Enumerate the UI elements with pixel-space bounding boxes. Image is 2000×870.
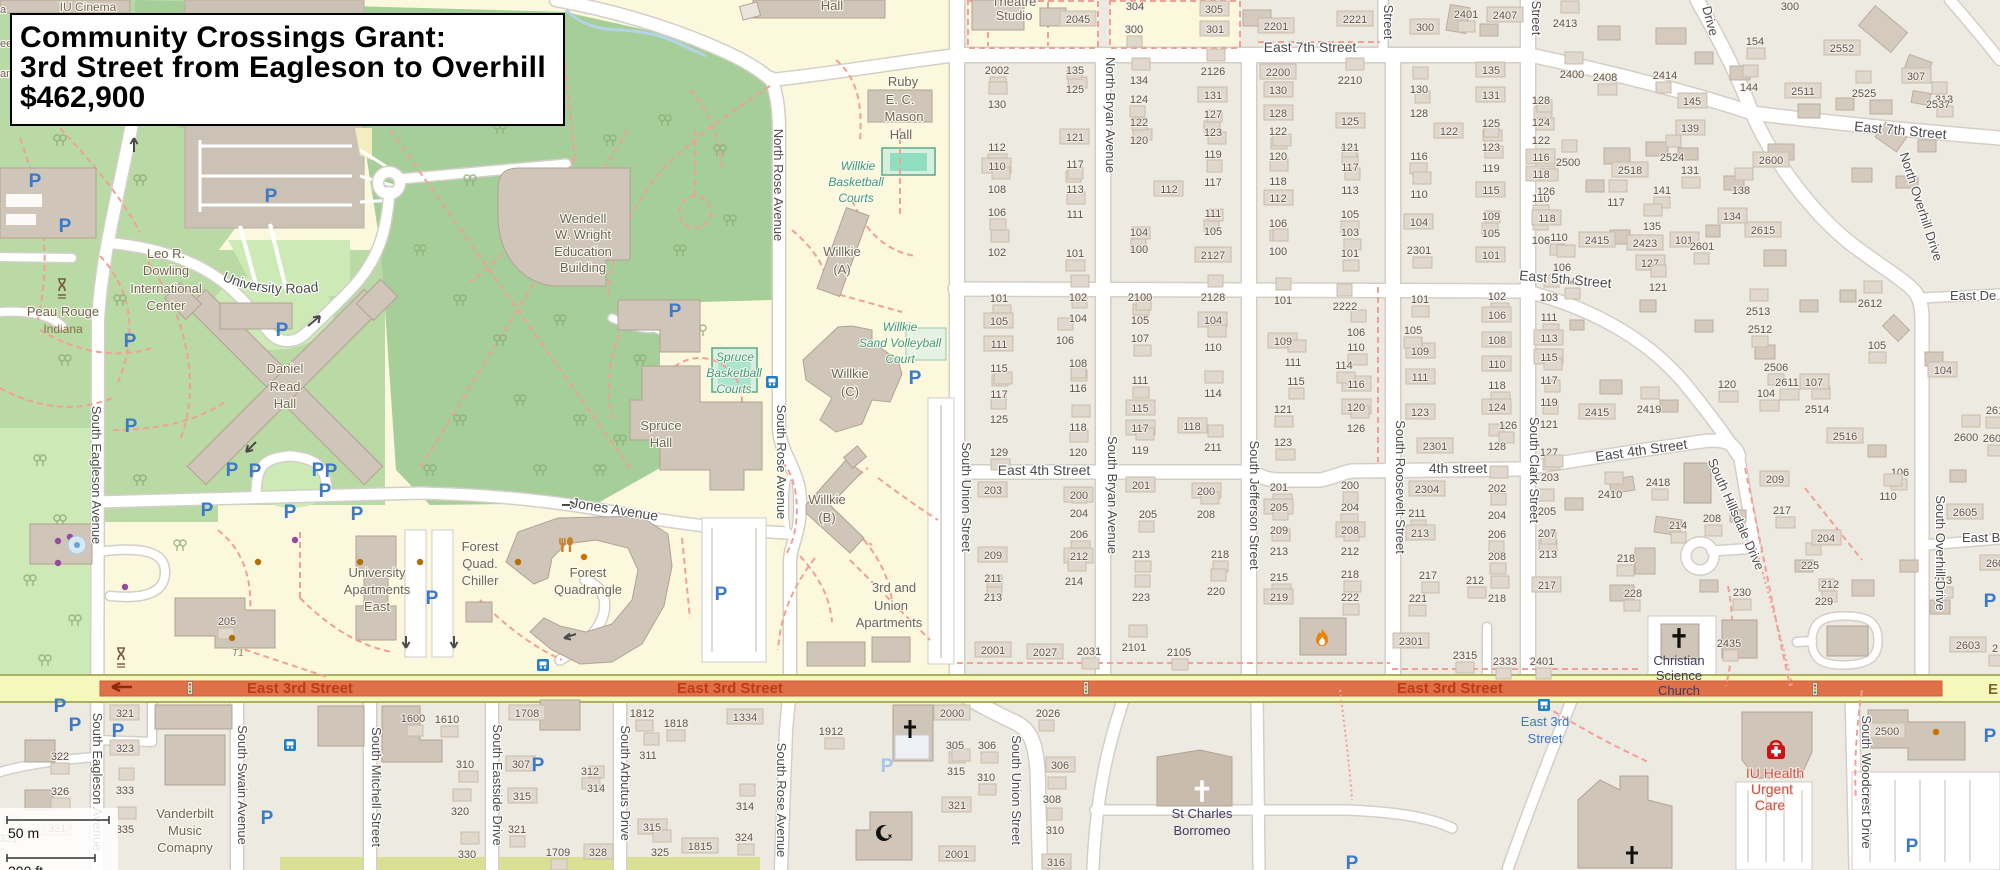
svg-text:105: 105 [1204, 226, 1222, 238]
svg-text:306: 306 [978, 740, 996, 752]
svg-text:321: 321 [116, 708, 134, 720]
svg-text:P: P [201, 500, 214, 521]
svg-text:2045: 2045 [1066, 14, 1090, 26]
svg-text:118: 118 [1269, 176, 1287, 188]
svg-text:125: 125 [1482, 118, 1500, 130]
svg-text:W. Wright: W. Wright [555, 227, 611, 242]
svg-text:Hall: Hall [650, 435, 673, 450]
svg-text:50 m: 50 m [8, 825, 39, 841]
svg-text:111: 111 [1285, 357, 1302, 369]
svg-text:130: 130 [1410, 84, 1428, 96]
svg-text:110: 110 [1488, 359, 1506, 371]
svg-text:2415: 2415 [1585, 235, 1609, 247]
svg-text:117: 117 [1066, 159, 1084, 171]
svg-text:111: 111 [1132, 375, 1149, 387]
svg-text:102: 102 [1488, 291, 1506, 303]
svg-text:2201: 2201 [1264, 21, 1288, 33]
svg-text:322: 322 [51, 751, 69, 763]
svg-text:126: 126 [1347, 423, 1365, 435]
svg-text:P: P [29, 171, 42, 192]
svg-text:Forest: Forest [570, 565, 607, 580]
svg-text:105: 105 [1131, 315, 1149, 327]
svg-text:213: 213 [1539, 549, 1557, 561]
svg-text:134: 134 [1130, 75, 1148, 87]
svg-text:Borromeo: Borromeo [1173, 823, 1230, 838]
svg-text:200: 200 [1070, 490, 1088, 502]
svg-text:Spruce: Spruce [640, 418, 681, 433]
svg-text:120: 120 [1130, 135, 1148, 147]
svg-text:217: 217 [1419, 570, 1437, 582]
svg-text:South Overhill Drive: South Overhill Drive [1933, 495, 1948, 611]
svg-text:2506: 2506 [1764, 362, 1788, 374]
svg-text:South Union Street: South Union Street [959, 442, 974, 552]
svg-text:101: 101 [1274, 295, 1292, 307]
svg-text:201: 201 [1132, 480, 1150, 492]
svg-text:2127: 2127 [1201, 250, 1225, 262]
svg-text:Willkie: Willkie [883, 320, 918, 334]
svg-text:201: 201 [1270, 482, 1288, 494]
svg-text:203: 203 [984, 485, 1002, 497]
svg-text:135: 135 [1482, 65, 1500, 77]
svg-text:South Bryan Avenue: South Bryan Avenue [1105, 436, 1120, 554]
svg-text:116: 116 [1069, 383, 1087, 395]
svg-text:P: P [1906, 836, 1919, 857]
svg-text:P: P [112, 721, 125, 742]
svg-text:204: 204 [1488, 510, 1506, 522]
svg-text:218: 218 [1488, 593, 1506, 605]
svg-text:220: 220 [1207, 586, 1225, 598]
svg-text:2513: 2513 [1746, 306, 1770, 318]
svg-text:East 3rd Street: East 3rd Street [677, 680, 783, 697]
svg-text:106: 106 [1532, 235, 1550, 247]
svg-text:2615: 2615 [1751, 225, 1775, 237]
svg-text:2100: 2100 [1128, 292, 1152, 304]
svg-text:2514: 2514 [1805, 404, 1829, 416]
svg-text:Chiller: Chiller [462, 573, 500, 588]
svg-text:2601: 2601 [1690, 241, 1714, 253]
svg-text:Mason: Mason [884, 109, 923, 124]
svg-text:IU Cinema: IU Cinema [60, 0, 117, 14]
svg-text:208: 208 [1703, 513, 1721, 525]
svg-text:301: 301 [1206, 24, 1224, 36]
svg-text:324: 324 [735, 832, 753, 844]
svg-text:121: 121 [1274, 404, 1292, 416]
svg-text:P: P [715, 584, 728, 605]
svg-text:South Woodcrest Drive: South Woodcrest Drive [1859, 715, 1874, 848]
svg-text:Sand Volleyball: Sand Volleyball [859, 336, 942, 350]
svg-text:2401: 2401 [1454, 9, 1478, 21]
svg-text:102: 102 [988, 247, 1006, 259]
svg-text:North Rose Avenue: North Rose Avenue [771, 129, 786, 242]
svg-text:2126: 2126 [1201, 66, 1225, 78]
svg-text:2101: 2101 [1122, 642, 1146, 654]
svg-text:121: 121 [1649, 282, 1667, 294]
svg-text:122: 122 [1130, 117, 1148, 129]
svg-text:204: 204 [1341, 502, 1359, 514]
svg-text:330: 330 [458, 849, 476, 861]
svg-text:P: P [261, 808, 274, 829]
svg-text:212: 212 [1821, 579, 1839, 591]
svg-text:2512: 2512 [1748, 324, 1772, 336]
svg-text:209: 209 [1766, 474, 1784, 486]
svg-text:115: 115 [1131, 403, 1149, 415]
svg-text:2605: 2605 [1953, 507, 1977, 519]
svg-text:3rd Street from Eagleson to Ov: 3rd Street from Eagleson to Overhill [20, 51, 546, 84]
svg-text:2419: 2419 [1637, 404, 1661, 416]
svg-text:118: 118 [1183, 421, 1201, 433]
svg-text:100: 100 [1269, 246, 1287, 258]
svg-text:2400: 2400 [1560, 69, 1584, 81]
svg-text:213: 213 [1270, 546, 1288, 558]
svg-text:115: 115 [1540, 352, 1558, 364]
svg-text:P: P [881, 756, 894, 777]
svg-text:P: P [532, 755, 545, 776]
svg-text:335: 335 [116, 824, 134, 836]
svg-text:107: 107 [1131, 333, 1149, 345]
svg-text:Street: Street [1529, 1, 1544, 36]
svg-text:119: 119 [1204, 149, 1222, 161]
svg-text:105: 105 [990, 316, 1008, 328]
svg-text:111: 111 [1205, 208, 1222, 220]
svg-text:2027: 2027 [1033, 647, 1057, 659]
svg-text:East 3rd Street: East 3rd Street [1397, 680, 1503, 697]
svg-text:104: 104 [1757, 388, 1775, 400]
svg-text:P: P [312, 460, 325, 481]
svg-text:T1: T1 [232, 648, 244, 659]
svg-text:P: P [351, 504, 364, 525]
svg-text:135: 135 [1066, 65, 1084, 77]
svg-text:North Bryan Avenue: North Bryan Avenue [1103, 57, 1118, 173]
svg-text:122: 122 [1440, 126, 1458, 138]
svg-text:2518: 2518 [1618, 165, 1642, 177]
svg-text:2408: 2408 [1593, 72, 1617, 84]
svg-text:Street: Street [1528, 731, 1563, 746]
svg-text:114: 114 [1335, 360, 1353, 372]
svg-text:120: 120 [1718, 379, 1736, 391]
svg-text:South Rose Avenue: South Rose Avenue [774, 743, 789, 858]
svg-text:300: 300 [1781, 1, 1799, 13]
svg-text:100: 100 [1130, 244, 1148, 256]
svg-text:East 4th Street: East 4th Street [998, 462, 1091, 478]
svg-text:2: 2 [1992, 643, 1998, 655]
svg-text:1610: 1610 [435, 714, 459, 726]
svg-text:Indiana: Indiana [43, 322, 83, 336]
svg-text:110: 110 [1550, 232, 1568, 244]
svg-text:117: 117 [1204, 177, 1222, 189]
svg-text:2407: 2407 [1493, 10, 1517, 22]
svg-text:205: 205 [1270, 502, 1288, 514]
svg-text:a: a [0, 4, 7, 16]
svg-text:222: 222 [1341, 592, 1359, 604]
svg-text:122: 122 [1269, 126, 1287, 138]
svg-text:Church: Church [1658, 683, 1700, 698]
svg-text:154: 154 [1746, 36, 1764, 48]
svg-text:2552: 2552 [1830, 43, 1854, 55]
svg-text:126: 126 [1499, 420, 1517, 432]
svg-text:2001: 2001 [981, 645, 1005, 657]
svg-text:109: 109 [1411, 346, 1429, 358]
svg-text:125: 125 [990, 414, 1008, 426]
svg-text:South Eagleson Avenue: South Eagleson Avenue [89, 406, 104, 545]
svg-text:214: 214 [1065, 576, 1083, 588]
svg-text:P: P [276, 320, 289, 341]
svg-text:2026: 2026 [1036, 708, 1060, 720]
svg-text:131: 131 [1204, 90, 1222, 102]
svg-text:2210: 2210 [1338, 75, 1362, 87]
svg-text:261: 261 [1986, 405, 2000, 417]
svg-text:131: 131 [1681, 165, 1699, 177]
svg-text:P: P [284, 502, 297, 523]
svg-text:2000: 2000 [940, 708, 964, 720]
svg-text:P: P [426, 588, 439, 609]
svg-text:111: 111 [1412, 372, 1429, 384]
svg-text:South Clark Street: South Clark Street [1527, 417, 1542, 524]
svg-text:South Swain Avenue: South Swain Avenue [235, 725, 250, 845]
svg-text:2500: 2500 [1556, 157, 1580, 169]
svg-text:South Jefferson Street: South Jefferson Street [1247, 440, 1262, 570]
svg-text:119: 119 [1131, 445, 1149, 457]
svg-text:225: 225 [1801, 560, 1819, 572]
svg-text:East De: East De [1950, 288, 1996, 303]
svg-text:Leo R.: Leo R. [147, 246, 185, 261]
svg-text:Willkie: Willkie [831, 366, 869, 381]
svg-text:E. C.: E. C. [886, 92, 915, 107]
svg-text:Studio: Studio [996, 8, 1033, 23]
svg-text:1600: 1600 [401, 713, 425, 725]
svg-text:138: 138 [1732, 185, 1750, 197]
svg-text:2002: 2002 [985, 65, 1009, 77]
svg-text:310: 310 [1046, 825, 1064, 837]
svg-text:P: P [124, 331, 137, 352]
svg-text:Care: Care [1755, 797, 1786, 813]
svg-text:106: 106 [988, 207, 1006, 219]
svg-text:East B: East B [1962, 530, 2000, 545]
svg-text:Courts: Courts [838, 191, 873, 205]
svg-text:128: 128 [1532, 95, 1550, 107]
svg-text:2304: 2304 [1415, 484, 1439, 496]
svg-text:East 3rd Street: East 3rd Street [247, 680, 353, 697]
svg-text:205: 205 [1139, 509, 1157, 521]
svg-text:Forest: Forest [462, 539, 499, 554]
svg-text:218: 218 [1211, 549, 1229, 561]
svg-text:2031: 2031 [1077, 646, 1101, 658]
svg-text:221: 221 [1409, 593, 1427, 605]
svg-text:2221: 2221 [1343, 14, 1367, 26]
svg-text:208: 208 [1341, 525, 1359, 537]
svg-text:103: 103 [1341, 227, 1359, 239]
svg-text:2315: 2315 [1453, 650, 1477, 662]
svg-text:315: 315 [513, 791, 531, 803]
svg-text:200: 200 [1197, 486, 1215, 498]
svg-text:217: 217 [1538, 580, 1556, 592]
svg-text:East 3rd: East 3rd [1521, 714, 1569, 729]
svg-text:2413: 2413 [1553, 18, 1577, 30]
svg-text:223: 223 [1132, 592, 1150, 604]
svg-text:124: 124 [1532, 117, 1550, 129]
svg-text:105: 105 [1341, 209, 1359, 221]
svg-text:200: 200 [1341, 480, 1359, 492]
svg-text:2603: 2603 [1956, 640, 1980, 652]
svg-text:102: 102 [1069, 292, 1087, 304]
svg-text:Urgent: Urgent [1751, 781, 1793, 797]
svg-text:213: 213 [984, 592, 1002, 604]
svg-text:135: 135 [1643, 221, 1661, 233]
svg-text:P: P [125, 416, 138, 437]
svg-text:310: 310 [456, 759, 474, 771]
svg-text:118: 118 [1069, 422, 1087, 434]
svg-text:116: 116 [1410, 151, 1428, 163]
svg-text:212: 212 [1070, 551, 1088, 563]
svg-text:123: 123 [1204, 127, 1222, 139]
svg-text:2410: 2410 [1598, 489, 1622, 501]
svg-text:107: 107 [1805, 377, 1823, 389]
svg-text:Education: Education [554, 244, 612, 259]
svg-text:144: 144 [1740, 82, 1758, 94]
svg-text:204: 204 [1070, 508, 1088, 520]
svg-text:213: 213 [1132, 549, 1150, 561]
svg-text:Comapny: Comapny [157, 840, 213, 855]
svg-text:Peau Rouge: Peau Rouge [27, 304, 99, 319]
svg-text:Ruby: Ruby [888, 74, 919, 89]
svg-text:321: 321 [508, 824, 526, 836]
svg-text:2525: 2525 [1852, 88, 1876, 100]
svg-text:East 7th Street: East 7th Street [1264, 39, 1357, 55]
svg-text:110: 110 [1410, 189, 1428, 201]
svg-text:Apartments: Apartments [344, 582, 411, 597]
svg-text:124: 124 [1488, 402, 1506, 414]
svg-text:145: 145 [1683, 96, 1701, 108]
svg-text:Basketball: Basketball [828, 175, 884, 189]
svg-text:127: 127 [1204, 109, 1222, 121]
svg-text:125: 125 [1341, 116, 1359, 128]
svg-text:305: 305 [1205, 4, 1223, 16]
svg-text:P: P [1346, 853, 1359, 870]
svg-text:Christian: Christian [1653, 653, 1704, 668]
svg-text:Willkie: Willkie [808, 492, 846, 507]
svg-text:300: 300 [1125, 24, 1143, 36]
svg-text:(C): (C) [841, 384, 859, 399]
svg-text:123: 123 [1482, 142, 1500, 154]
svg-text:208: 208 [1197, 509, 1215, 521]
svg-text:120: 120 [1269, 151, 1287, 163]
svg-text:121: 121 [1341, 142, 1359, 154]
svg-text:P: P [909, 368, 922, 389]
svg-text:East: East [364, 599, 390, 614]
svg-text:Union: Union [874, 598, 908, 613]
svg-text:P: P [669, 301, 682, 322]
svg-text:101: 101 [1066, 248, 1084, 260]
svg-text:South Rose Avenue: South Rose Avenue [774, 405, 789, 520]
svg-text:230: 230 [1733, 587, 1751, 599]
svg-text:105: 105 [1482, 228, 1500, 240]
svg-text:108: 108 [1488, 335, 1506, 347]
svg-text:2423: 2423 [1633, 238, 1657, 250]
svg-text:214: 214 [1669, 520, 1687, 532]
svg-text:305: 305 [946, 740, 964, 752]
svg-text:110: 110 [988, 161, 1006, 173]
svg-text:141: 141 [1653, 185, 1671, 197]
svg-text:212: 212 [1466, 575, 1484, 587]
svg-text:218: 218 [1341, 569, 1359, 581]
svg-text:106: 106 [1269, 218, 1287, 230]
svg-text:Hall: Hall [890, 127, 913, 142]
svg-text:101: 101 [990, 293, 1008, 305]
svg-text:E: E [1988, 681, 1998, 698]
svg-text:120: 120 [1347, 402, 1365, 414]
svg-text:106: 106 [1488, 310, 1506, 322]
svg-text:South Mitchell Street: South Mitchell Street [369, 727, 384, 847]
svg-text:315: 315 [947, 766, 965, 778]
svg-text:306: 306 [1051, 760, 1069, 772]
svg-text:104: 104 [1410, 217, 1428, 229]
svg-text:321: 321 [948, 800, 966, 812]
svg-text:2128: 2128 [1201, 292, 1225, 304]
svg-text:128: 128 [1488, 441, 1506, 453]
svg-text:122: 122 [1532, 135, 1550, 147]
svg-text:IU Health: IU Health [1746, 765, 1804, 781]
svg-text:113: 113 [1540, 333, 1558, 345]
svg-text:P: P [59, 216, 72, 237]
svg-text:University: University [348, 565, 406, 580]
svg-text:2537: 2537 [1926, 99, 1950, 111]
svg-text:308: 308 [1043, 794, 1061, 806]
svg-text:St Charles: St Charles [1172, 806, 1233, 821]
svg-text:3rd and: 3rd and [872, 580, 916, 595]
svg-text:139: 139 [1681, 123, 1699, 135]
svg-text:120: 120 [1069, 447, 1087, 459]
svg-text:117: 117 [1131, 423, 1149, 435]
svg-text:104: 104 [1934, 365, 1952, 377]
svg-text:115: 115 [990, 363, 1008, 375]
svg-text:328: 328 [589, 847, 607, 859]
svg-text:2222: 2222 [1333, 301, 1357, 313]
svg-text:111: 111 [991, 339, 1008, 351]
svg-text:Quadrangle: Quadrangle [554, 582, 622, 597]
svg-text:105: 105 [1404, 325, 1422, 337]
svg-text:207: 207 [1538, 528, 1556, 540]
svg-text:125: 125 [1066, 84, 1084, 96]
svg-text:Community Crossings Grant:: Community Crossings Grant: [20, 21, 446, 54]
svg-text:Vanderbilt: Vanderbilt [156, 806, 214, 821]
svg-text:117: 117 [1341, 162, 1359, 174]
svg-text:2600: 2600 [1759, 155, 1783, 167]
svg-text:117: 117 [1540, 375, 1558, 387]
svg-text:300: 300 [1416, 22, 1434, 34]
svg-text:205: 205 [218, 616, 236, 628]
svg-text:Willkie: Willkie [841, 159, 876, 173]
svg-text:130: 130 [988, 99, 1006, 111]
svg-text:South Roosevelt Street: South Roosevelt Street [1393, 420, 1408, 554]
svg-text:2414: 2414 [1653, 70, 1677, 82]
svg-text:211: 211 [984, 573, 1002, 585]
svg-text:1709: 1709 [546, 847, 570, 859]
svg-text:104: 104 [1130, 227, 1148, 239]
svg-text:2301: 2301 [1423, 441, 1447, 453]
svg-text:Apartments: Apartments [856, 615, 923, 630]
svg-text:213: 213 [1411, 528, 1429, 540]
svg-text:320: 320 [451, 806, 469, 818]
svg-text:South Eastside Drive: South Eastside Drive [490, 724, 505, 845]
svg-text:202: 202 [1488, 483, 1506, 495]
svg-text:Dowling: Dowling [143, 263, 189, 278]
svg-text:P: P [1984, 726, 1997, 747]
svg-text:314: 314 [736, 801, 754, 813]
svg-text:111: 111 [1541, 312, 1558, 324]
svg-text:209: 209 [984, 550, 1002, 562]
svg-text:2105: 2105 [1167, 647, 1191, 659]
svg-text:(B): (B) [818, 510, 835, 525]
svg-text:108: 108 [1069, 358, 1087, 370]
